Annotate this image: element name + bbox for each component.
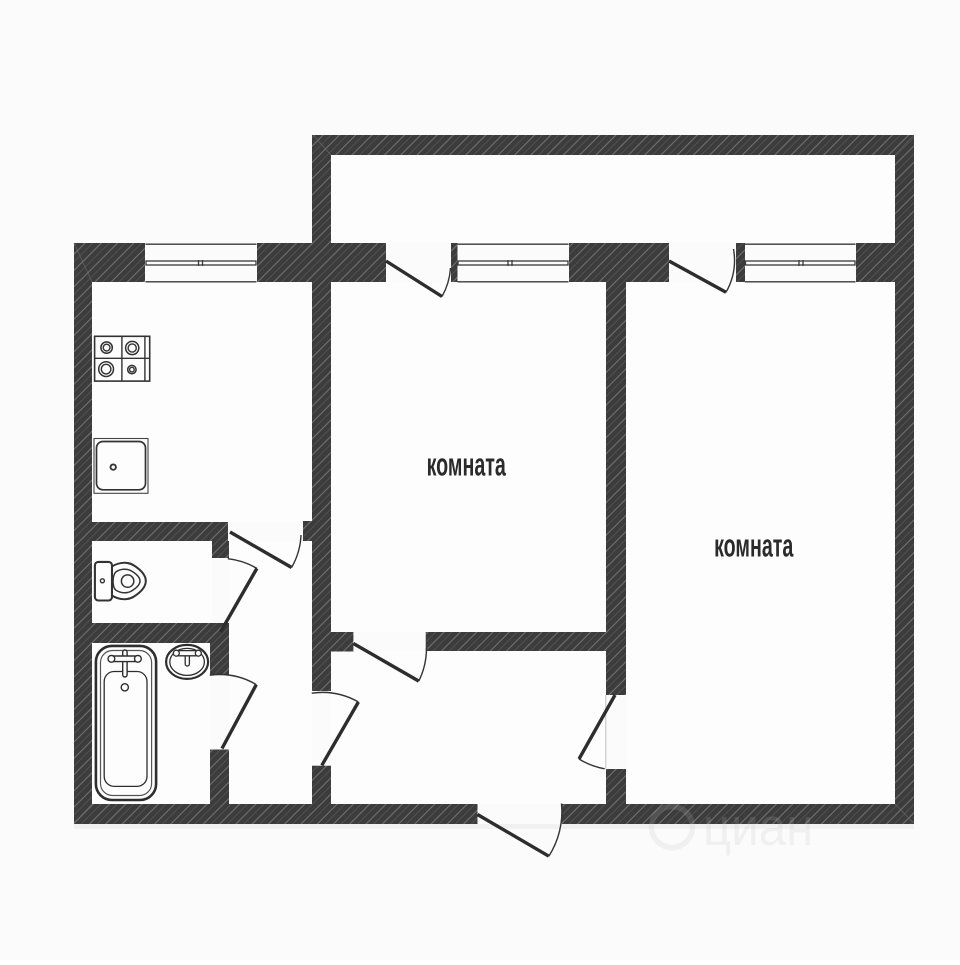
svg-text:комната: комната bbox=[427, 446, 507, 482]
svg-text:циан: циан bbox=[703, 797, 813, 856]
svg-text:комната: комната bbox=[714, 527, 794, 563]
